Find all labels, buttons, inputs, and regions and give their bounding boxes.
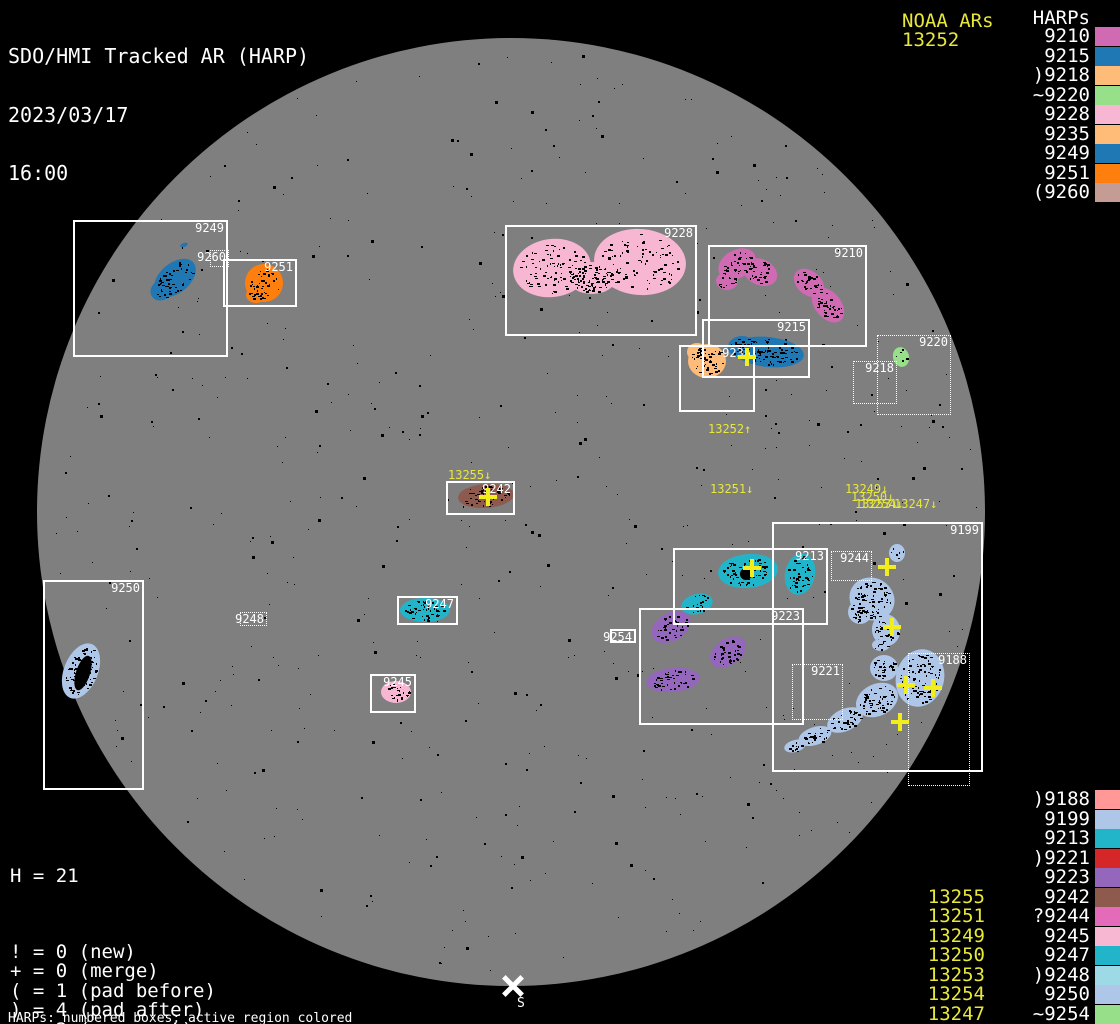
disk-speckle	[521, 178, 522, 179]
disk-speckle	[929, 427, 930, 428]
disk-speckle	[262, 769, 265, 772]
disk-speckle	[901, 426, 902, 427]
noaa-number: 13247	[890, 1005, 985, 1024]
legend-row: 9249	[985, 144, 1120, 164]
harp-box-9188: 9188	[908, 653, 970, 786]
disk-speckle	[643, 750, 645, 752]
disk-speckle	[163, 706, 165, 708]
disk-speckle	[294, 584, 295, 585]
noaa-ar-label: 13255↓	[448, 469, 491, 482]
disk-speckle	[220, 680, 221, 681]
disk-speckle	[476, 817, 477, 818]
disk-speckle	[559, 157, 560, 158]
disk-speckle	[505, 763, 507, 765]
disk-speckle	[373, 642, 374, 643]
harp-box-label: 9215	[777, 321, 806, 334]
noaa-number: 13250	[890, 946, 985, 966]
disk-speckle	[479, 598, 480, 599]
disk-speckle	[350, 430, 351, 431]
disk-speckle	[544, 746, 545, 747]
disk-speckle	[157, 597, 158, 598]
disk-speckle	[297, 809, 298, 810]
harp-box-label: 9260	[197, 251, 226, 264]
harp-color-swatch	[1095, 849, 1120, 868]
harp-color-swatch	[1095, 183, 1120, 202]
disk-speckle	[492, 283, 493, 284]
disk-speckle	[731, 136, 732, 137]
disk-speckle	[297, 741, 299, 743]
disk-speckle	[519, 806, 520, 807]
disk-speckle	[319, 445, 321, 447]
disk-speckle	[502, 234, 504, 236]
disk-speckle	[274, 836, 275, 837]
harp-box-label: 9213	[795, 550, 824, 563]
disk-speckle	[811, 830, 812, 831]
disk-speckle	[409, 862, 410, 863]
disk-speckle	[874, 411, 875, 412]
disk-speckle	[765, 415, 767, 417]
disk-speckle	[592, 115, 594, 117]
disk-speckle	[451, 139, 454, 142]
disk-speckle	[856, 520, 857, 521]
harp-box-label: 9251	[264, 261, 293, 274]
cross-bar	[890, 618, 894, 636]
disk-speckle	[215, 691, 216, 692]
disk-speckle	[778, 432, 780, 434]
disk-speckle	[596, 128, 597, 129]
disk-speckle	[411, 731, 412, 732]
disk-speckle	[874, 227, 875, 228]
disk-speckle	[436, 856, 438, 858]
date-label: 2023/03/17	[8, 106, 309, 126]
disk-speckle	[821, 487, 822, 488]
disk-speckle	[501, 856, 502, 857]
disk-speckle	[498, 580, 500, 582]
disk-speckle	[370, 895, 372, 897]
legend-row: (9260	[985, 183, 1120, 203]
disk-speckle	[799, 835, 800, 836]
disk-speckle	[747, 803, 750, 806]
harps-legend-top: 92109215)9218~92209228923592499251(9260	[985, 27, 1120, 203]
disk-speckle	[241, 353, 243, 355]
disk-speckle	[580, 84, 581, 85]
disk-speckle	[906, 283, 909, 286]
harp-number: ~9254	[985, 1005, 1095, 1024]
disk-speckle	[356, 81, 357, 82]
disk-speckle	[618, 917, 619, 918]
disk-speckle	[942, 426, 944, 428]
disk-speckle	[540, 704, 542, 706]
disk-speckle	[318, 655, 319, 656]
disk-speckle	[191, 730, 193, 732]
disk-speckle	[65, 472, 67, 474]
disk-speckle	[98, 403, 100, 405]
disk-speckle	[601, 135, 604, 138]
disk-speckle	[252, 537, 254, 539]
cross-bar	[885, 558, 889, 576]
disk-speckle	[277, 446, 278, 447]
noaa-ar-label: 13247↓	[894, 498, 937, 511]
disk-speckle	[653, 878, 655, 880]
cross-bar	[931, 679, 935, 697]
disk-speckle	[634, 525, 637, 528]
disk-speckle	[320, 889, 323, 892]
disk-speckle	[693, 930, 694, 931]
disk-speckle	[939, 501, 940, 502]
disk-speckle	[420, 657, 421, 658]
disk-speckle	[752, 817, 754, 819]
disk-speckle	[182, 682, 185, 685]
disk-speckle	[302, 819, 303, 820]
disk-speckle	[586, 758, 587, 759]
disk-speckle	[783, 798, 784, 799]
disk-speckle	[831, 366, 833, 368]
disk-speckle	[628, 671, 629, 672]
disk-speckle	[271, 541, 274, 544]
harp-number: (9260	[985, 183, 1095, 203]
disk-speckle	[855, 511, 857, 513]
disk-speckle	[213, 524, 214, 525]
legend-row: 9213	[890, 829, 1120, 849]
disk-speckle	[488, 936, 489, 937]
disk-speckle	[319, 246, 320, 247]
disk-speckle	[683, 526, 684, 527]
disk-speckle	[276, 808, 277, 809]
disk-speckle	[555, 412, 556, 413]
disk-speckle	[706, 228, 707, 229]
disk-speckle	[149, 578, 150, 579]
disk-speckle	[513, 201, 514, 202]
disk-speckle	[612, 587, 614, 589]
disk-speckle	[932, 420, 935, 423]
disk-speckle	[379, 382, 380, 383]
disk-speckle	[478, 63, 480, 65]
disk-speckle	[613, 663, 614, 664]
disk-speckle	[202, 385, 203, 386]
disk-speckle	[817, 423, 820, 426]
disk-speckle	[471, 671, 473, 673]
disk-speckle	[622, 84, 623, 85]
disk-speckle	[471, 196, 472, 197]
disk-speckle	[356, 506, 357, 507]
disk-speckle	[217, 397, 218, 398]
disk-speckle	[379, 835, 380, 836]
disk-speckle	[949, 437, 950, 438]
harp-number: 9249	[985, 144, 1095, 164]
harp-box-label: 9249	[195, 222, 224, 235]
disk-speckle	[366, 905, 368, 907]
disk-speckle	[402, 431, 404, 433]
footnote-harps: HARPs: numbered boxes; active region col…	[8, 1013, 462, 1024]
disk-speckle	[703, 469, 705, 471]
harp-box-label: 9220	[919, 336, 948, 349]
disk-speckle	[832, 225, 833, 226]
disk-speckle	[762, 882, 764, 884]
disk-speckle	[247, 378, 248, 379]
disk-speckle	[887, 772, 888, 773]
disk-speckle	[221, 513, 222, 514]
disk-speckle	[525, 524, 527, 526]
disk-speckle	[515, 933, 516, 934]
disk-speckle	[264, 838, 265, 839]
disk-speckle	[776, 447, 777, 448]
disk-speckle	[785, 145, 787, 147]
disk-speckle	[699, 299, 701, 301]
disk-speckle	[547, 564, 550, 567]
disk-speckle	[320, 497, 321, 498]
disk-speckle	[917, 442, 918, 443]
disk-speckle	[847, 431, 849, 433]
harp-color-swatch	[1095, 47, 1120, 66]
disk-speckle	[612, 344, 614, 346]
noaa-cross	[479, 488, 497, 506]
disk-speckle	[577, 476, 579, 478]
disk-speckle	[505, 520, 506, 521]
disk-speckle	[348, 220, 349, 221]
disk-speckle	[574, 811, 576, 813]
disk-speckle	[478, 703, 479, 704]
harp-color-swatch	[1095, 66, 1120, 85]
disk-speckle	[267, 323, 268, 324]
harp-box-label: 9254	[603, 631, 632, 644]
disk-speckle	[530, 486, 531, 487]
disk-speckle	[468, 662, 469, 663]
disk-speckle	[599, 457, 600, 458]
disk-speckle	[148, 717, 149, 718]
noaa-number	[890, 810, 985, 830]
disk-speckle	[461, 584, 462, 585]
disk-speckle	[347, 255, 349, 257]
disk-speckle	[217, 763, 218, 764]
disk-speckle	[308, 529, 309, 530]
disk-speckle	[752, 469, 753, 470]
noaa-cross	[743, 559, 761, 577]
harp-number: 9250	[985, 985, 1095, 1005]
disk-speckle	[524, 337, 526, 339]
harp-color-swatch	[1095, 985, 1120, 1004]
disk-speckle	[577, 395, 578, 396]
disk-speckle	[780, 195, 781, 196]
disk-speckle	[461, 520, 462, 521]
disk-speckle	[452, 930, 453, 931]
noaa-ar-label: 13252↑	[708, 423, 751, 436]
disk-speckle	[553, 145, 555, 147]
disk-speckle	[409, 439, 410, 440]
disk-speckle	[395, 372, 397, 374]
disk-speckle	[430, 865, 432, 867]
disk-speckle	[494, 232, 495, 233]
disk-speckle	[500, 405, 502, 407]
harp-color-swatch	[1095, 790, 1120, 809]
disk-speckle	[759, 782, 760, 783]
harp-box-9244: 9244	[831, 551, 872, 581]
legend-row: 13247~9254	[890, 1005, 1120, 1024]
disk-speckle	[374, 408, 376, 410]
disk-speckle	[190, 507, 192, 509]
disk-speckle	[771, 428, 772, 429]
legend-row: 13251?9244	[890, 907, 1120, 927]
disk-speckle	[617, 494, 618, 495]
harp-color-swatch	[1095, 946, 1120, 965]
disk-speckle	[563, 957, 564, 958]
disk-speckle	[290, 501, 291, 502]
disk-speckle	[453, 186, 454, 187]
noaa-number	[890, 868, 985, 888]
disk-speckle	[371, 403, 372, 404]
disk-speckle	[278, 665, 279, 666]
disk-speckle	[457, 140, 459, 142]
disk-speckle	[614, 88, 615, 89]
harp-box-label: 9244	[840, 552, 869, 565]
disk-speckle	[679, 913, 680, 914]
disk-speckle	[817, 168, 818, 169]
disk-speckle	[643, 158, 644, 159]
disk-speckle	[774, 497, 776, 499]
disk-speckle	[890, 271, 891, 272]
disk-speckle	[507, 57, 508, 58]
harp-color-swatch	[1095, 1005, 1120, 1024]
disk-speckle	[809, 445, 810, 446]
disk-speckle	[372, 741, 375, 744]
disk-speckle	[574, 655, 575, 656]
harps-legend-bottom: )918891999213)9221922313255924213251?924…	[890, 790, 1120, 1024]
disk-speckle	[643, 404, 645, 406]
disk-speckle	[172, 389, 174, 391]
disk-speckle	[369, 279, 370, 280]
disk-speckle	[441, 792, 442, 793]
disk-speckle	[717, 143, 718, 144]
disk-speckle	[568, 639, 571, 642]
disk-speckle	[970, 449, 971, 450]
harp-box-label: 9248	[235, 613, 264, 626]
harp-number: )9188	[985, 790, 1095, 810]
disk-speckle	[795, 220, 797, 222]
disk-speckle	[192, 378, 193, 379]
disk-speckle	[923, 467, 926, 470]
harp-count: H = 21	[10, 867, 227, 886]
footnotes: HARPs: numbered boxes; active region col…	[8, 989, 462, 1024]
disk-speckle	[642, 779, 643, 780]
disk-speckle	[545, 873, 546, 874]
disk-speckle	[419, 76, 420, 77]
disk-speckle	[646, 574, 647, 575]
noaa-ar-label: 13251↓	[710, 483, 753, 496]
disk-speckle	[465, 720, 467, 722]
disk-speckle	[606, 396, 607, 397]
disk-speckle	[108, 495, 110, 497]
disk-speckle	[56, 533, 57, 534]
disk-speckle	[250, 541, 251, 542]
disk-speckle	[604, 651, 605, 652]
disk-speckle	[267, 573, 268, 574]
disk-speckle	[732, 544, 733, 545]
disk-speckle	[871, 802, 872, 803]
harp-number: 9247	[985, 946, 1095, 966]
disk-speckle	[330, 218, 331, 219]
disk-speckle	[645, 870, 646, 871]
disk-speckle	[66, 517, 67, 518]
harp-box-9249: 9249	[73, 220, 228, 357]
title-block: SDO/HMI Tracked AR (HARP) 2023/03/17 16:…	[8, 8, 309, 223]
noaa-number: 13254	[890, 985, 985, 1005]
harp-color-swatch	[1095, 868, 1120, 887]
disk-speckle	[776, 177, 777, 178]
disk-speckle	[426, 839, 427, 840]
disk-speckle	[285, 437, 286, 438]
disk-speckle	[419, 385, 421, 387]
disk-speckle	[429, 747, 430, 748]
legend-row: 132509247	[890, 946, 1120, 966]
disk-speckle	[500, 292, 501, 293]
disk-speckle	[568, 657, 569, 658]
disk-speckle	[233, 674, 234, 675]
disk-speckle	[536, 710, 537, 711]
harp-color-swatch	[1095, 164, 1120, 183]
harp-box-label: 9250	[111, 582, 140, 595]
disk-speckle	[271, 730, 272, 731]
disk-speckle	[400, 722, 402, 724]
harp-number: )9218	[985, 66, 1095, 86]
harp-color-swatch	[1095, 144, 1120, 163]
disk-speckle	[396, 540, 398, 542]
disk-speckle	[606, 486, 607, 487]
harp-box-label: 9247	[425, 598, 454, 611]
disk-speckle	[151, 421, 153, 423]
disk-speckle	[602, 355, 603, 356]
harp-box-9220: 9220	[877, 335, 951, 415]
disk-speckle	[961, 468, 963, 470]
disk-speckle	[824, 192, 825, 193]
disk-speckle	[317, 165, 318, 166]
disk-speckle	[822, 174, 823, 175]
disk-speckle	[341, 497, 343, 499]
disk-speckle	[691, 99, 692, 100]
disk-speckle	[766, 189, 767, 190]
noaa-cross	[878, 558, 896, 576]
disk-speckle	[712, 158, 714, 160]
disk-speckle	[786, 177, 788, 179]
disk-speckle	[828, 237, 829, 238]
harp-color-swatch	[1095, 888, 1120, 907]
disk-speckle	[666, 797, 667, 798]
disk-speckle	[420, 428, 421, 429]
disk-speckle	[730, 777, 731, 778]
disk-speckle	[371, 240, 374, 243]
disk-speckle	[368, 598, 369, 599]
disk-speckle	[273, 657, 274, 658]
disk-speckle	[809, 420, 810, 421]
harp-box-label: 9228	[664, 227, 693, 240]
disk-speckle	[205, 700, 207, 702]
disk-speckle	[668, 356, 669, 357]
disk-speckle	[315, 410, 318, 413]
disk-speckle	[596, 223, 597, 224]
disk-speckle	[584, 438, 587, 441]
disk-speckle	[615, 842, 618, 845]
page-title: SDO/HMI Tracked AR (HARP)	[8, 47, 309, 67]
disk-speckle	[577, 422, 578, 423]
disk-speckle	[748, 541, 749, 542]
disk-speckle	[466, 188, 468, 190]
disk-speckle	[495, 101, 498, 104]
harp-box-label: 9223	[771, 610, 800, 623]
disk-speckle	[514, 692, 517, 695]
disk-speckle	[293, 557, 294, 558]
disk-speckle	[711, 734, 712, 735]
disk-speckle	[630, 864, 633, 867]
harp-box-9228: 9228	[505, 225, 697, 336]
disk-speckle	[427, 412, 429, 414]
